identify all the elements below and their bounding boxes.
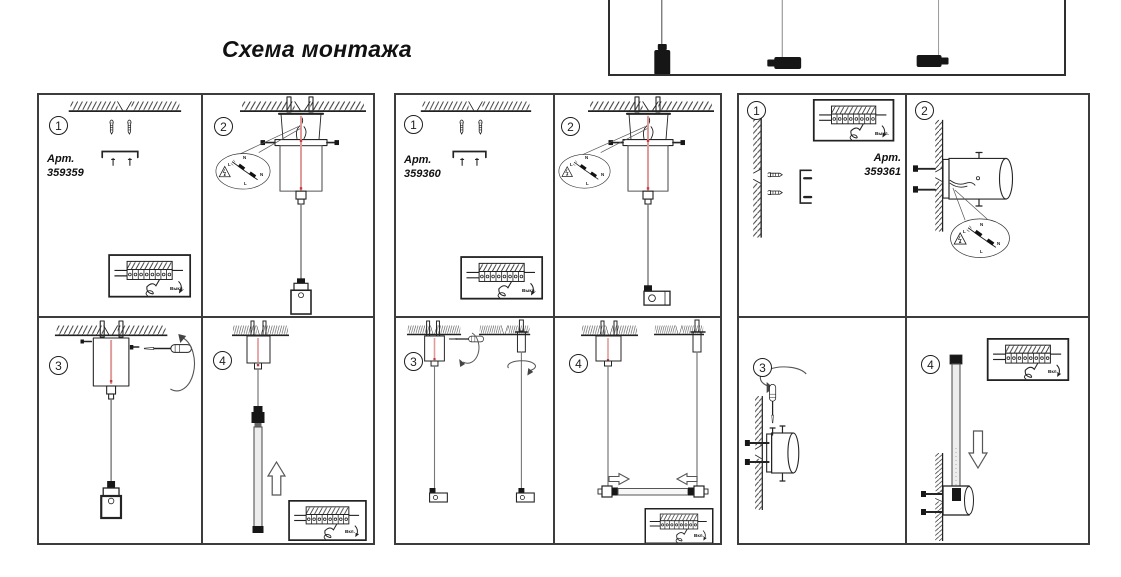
- article-value: 359360: [404, 167, 441, 181]
- article-label: Арт.: [47, 152, 84, 166]
- tube-lamp-vertical: [254, 427, 262, 528]
- cable-mark: [257, 364, 259, 366]
- step-cell-4: 4 Вкл.: [203, 318, 373, 543]
- wall-anchor-icon: [767, 191, 782, 195]
- lamp-socket-vertical: [101, 488, 121, 518]
- panel-art-359359: 1 Арт. 359359 Выкл.: [37, 93, 375, 545]
- step-2-illustration: [907, 95, 1088, 316]
- wall-anchor-icon: [460, 120, 463, 134]
- step-cell-1: 1 Арт. 359361 Выкл.: [739, 95, 907, 318]
- wire-label-n: N: [601, 172, 604, 177]
- step-number-badge: 3: [404, 352, 423, 371]
- wall-anchor-icon: [110, 120, 113, 134]
- ceiling-hatch: [55, 326, 168, 336]
- article-number: Арт. 359359: [47, 152, 84, 181]
- mounting-bracket: [102, 151, 138, 165]
- pendant-lamp-vertical-icon: [654, 0, 670, 74]
- switch-on-label: Вкл.: [345, 529, 355, 534]
- socket-cap: [107, 481, 115, 488]
- article-value: 359359: [47, 166, 84, 180]
- switch-on-label: Вкл.: [694, 533, 704, 538]
- page-title: Схема монтажа: [222, 36, 412, 63]
- socket-cap: [297, 278, 305, 283]
- cord-coupler: [252, 406, 265, 427]
- cable-mark: [300, 140, 302, 142]
- product-preview-box: [608, 0, 1066, 76]
- rotation-arrowhead: [178, 334, 186, 343]
- socket-cap: [952, 488, 961, 501]
- step-number-badge: 1: [404, 115, 423, 134]
- step-4-illustration: [203, 318, 373, 543]
- socket-cap: [518, 488, 524, 493]
- up-arrow: [268, 462, 285, 495]
- ceiling-hatch: [240, 101, 366, 111]
- step-cell-4: 4 Вкл.: [907, 318, 1088, 543]
- step-number-badge: 4: [213, 351, 232, 370]
- wire-label-n: N: [997, 241, 1000, 246]
- ceiling-hatch: [421, 101, 532, 111]
- down-arrow: [969, 431, 987, 468]
- wire-label-l: L: [244, 181, 247, 186]
- socket-cap: [430, 488, 436, 493]
- mount-plate: [943, 159, 949, 198]
- cord-grip: [296, 191, 306, 199]
- ceiling-hatch: [654, 325, 704, 334]
- step-cell-1: 1 Арт. 359359 Выкл.: [39, 95, 203, 318]
- ceiling-hatch: [407, 325, 461, 334]
- step-3-illustration: [739, 318, 905, 543]
- push-left-arrow: [677, 474, 697, 485]
- step-4-illustration: [555, 318, 720, 543]
- cord-grip: [107, 386, 116, 394]
- step-number-badge: 1: [747, 101, 766, 120]
- push-right-arrow: [609, 474, 629, 485]
- cable-mark: [433, 358, 435, 360]
- tube-end-cap: [950, 355, 962, 364]
- fixture-end: [788, 433, 799, 473]
- cable-mark: [647, 140, 649, 142]
- switch-off-label: Выкл.: [522, 288, 536, 293]
- rotate-cord-arrowhead: [527, 368, 533, 376]
- article-label: Арт.: [839, 151, 901, 165]
- mount-plate: [767, 434, 772, 472]
- step-cell-2: 2 N L N L: [555, 95, 720, 318]
- mounting-bracket: [453, 151, 486, 165]
- wire-label-n: N: [980, 222, 983, 227]
- lamp-socket-horizontal: [644, 291, 670, 305]
- wire-label-n: N: [260, 172, 263, 177]
- switch-off-label: Выкл.: [875, 131, 889, 136]
- panel-art-359361: 1 Арт. 359361 Выкл.: [737, 93, 1090, 545]
- step-3-illustration: [39, 318, 201, 543]
- cable-mark: [647, 187, 649, 189]
- wire-label-n: N: [585, 155, 588, 160]
- article-number: Арт. 359360: [404, 153, 441, 182]
- step-number-badge: 1: [49, 116, 68, 135]
- article-value: 359361: [839, 165, 901, 179]
- terminal-block-inset: [289, 501, 366, 540]
- lamp-socket-horizontal: [430, 493, 448, 502]
- mounting-bracket: [800, 170, 811, 203]
- wall-anchor-icon: [128, 120, 131, 134]
- step-number-badge: 3: [753, 358, 772, 377]
- ceiling-hatch: [581, 326, 638, 336]
- article-label: Арт.: [404, 153, 441, 167]
- step-cell-2: 2 N L N L: [203, 95, 373, 318]
- ceiling-hatch: [588, 101, 714, 111]
- step-cell-4: 4 Вкл.: [555, 318, 720, 543]
- step-4-illustration: [907, 318, 1088, 543]
- step-number-badge: 3: [49, 356, 68, 375]
- step-number-badge: 2: [561, 117, 580, 136]
- cable-mark: [300, 187, 302, 189]
- screwdriver-icon: [144, 345, 191, 353]
- tube-lamp-vertical: [952, 364, 960, 491]
- lamp-socket-vertical: [291, 283, 311, 314]
- ceiling-hatch: [232, 326, 289, 336]
- fixture-body: [949, 158, 1006, 199]
- step-3-illustration: [396, 318, 553, 543]
- step-number-badge: 4: [569, 354, 588, 373]
- step-cell-3: 3: [396, 318, 555, 543]
- step-cell-3: 3: [39, 318, 203, 543]
- wire-label-n: N: [243, 155, 246, 160]
- fixture-end: [1000, 158, 1013, 199]
- cord-grip: [643, 191, 653, 199]
- tube-end-cap: [253, 526, 264, 533]
- wall-hatch: [935, 453, 942, 541]
- wall-hatch: [935, 120, 942, 232]
- cable-mark: [110, 380, 112, 382]
- wire-label-l: L: [570, 162, 573, 167]
- wall-hatch: [755, 396, 762, 510]
- wall-anchor-icon: [479, 120, 482, 134]
- wires: [950, 180, 975, 187]
- tube-lamp-horizontal: [598, 486, 708, 497]
- step-1-illustration: [739, 95, 905, 316]
- cable-suspension: [691, 320, 705, 488]
- step-number-badge: 2: [214, 117, 233, 136]
- wall-hatch: [753, 117, 761, 238]
- step-number-badge: 2: [915, 101, 934, 120]
- panel-art-359360: 1 Арт. 359360 Выкл.: [394, 93, 722, 545]
- pendant-lamps-illustration: [610, 0, 1064, 74]
- pendant-lamp-horizontal-icon: [917, 0, 949, 67]
- ceiling-hatch: [69, 101, 182, 111]
- wire-label-l: L: [228, 162, 231, 167]
- socket-end: [965, 487, 974, 515]
- step-cell-2: 2 N L N L: [907, 95, 1088, 318]
- screwdriver-icon: [769, 384, 775, 423]
- article-number: Арт. 359361: [839, 151, 901, 180]
- ceiling-hatch: [479, 325, 530, 334]
- wire-label-l: L: [980, 249, 983, 254]
- wall-anchor-icon: [767, 173, 782, 177]
- pendant-lamp-horizontal-icon: [767, 0, 801, 69]
- step-cell-3: 3: [739, 318, 907, 543]
- cable-suspension: [515, 320, 527, 488]
- switch-on-label: Вкл.: [1048, 369, 1058, 374]
- lamp-socket-horizontal: [516, 493, 534, 502]
- step-cell-1: 1 Арт. 359360 Выкл.: [396, 95, 555, 318]
- switch-off-label: Выкл.: [170, 286, 184, 291]
- socket-cap: [644, 285, 652, 291]
- step-number-badge: 4: [921, 355, 940, 374]
- wire-label-l: L: [586, 181, 589, 186]
- wire-label-l: L: [963, 229, 966, 234]
